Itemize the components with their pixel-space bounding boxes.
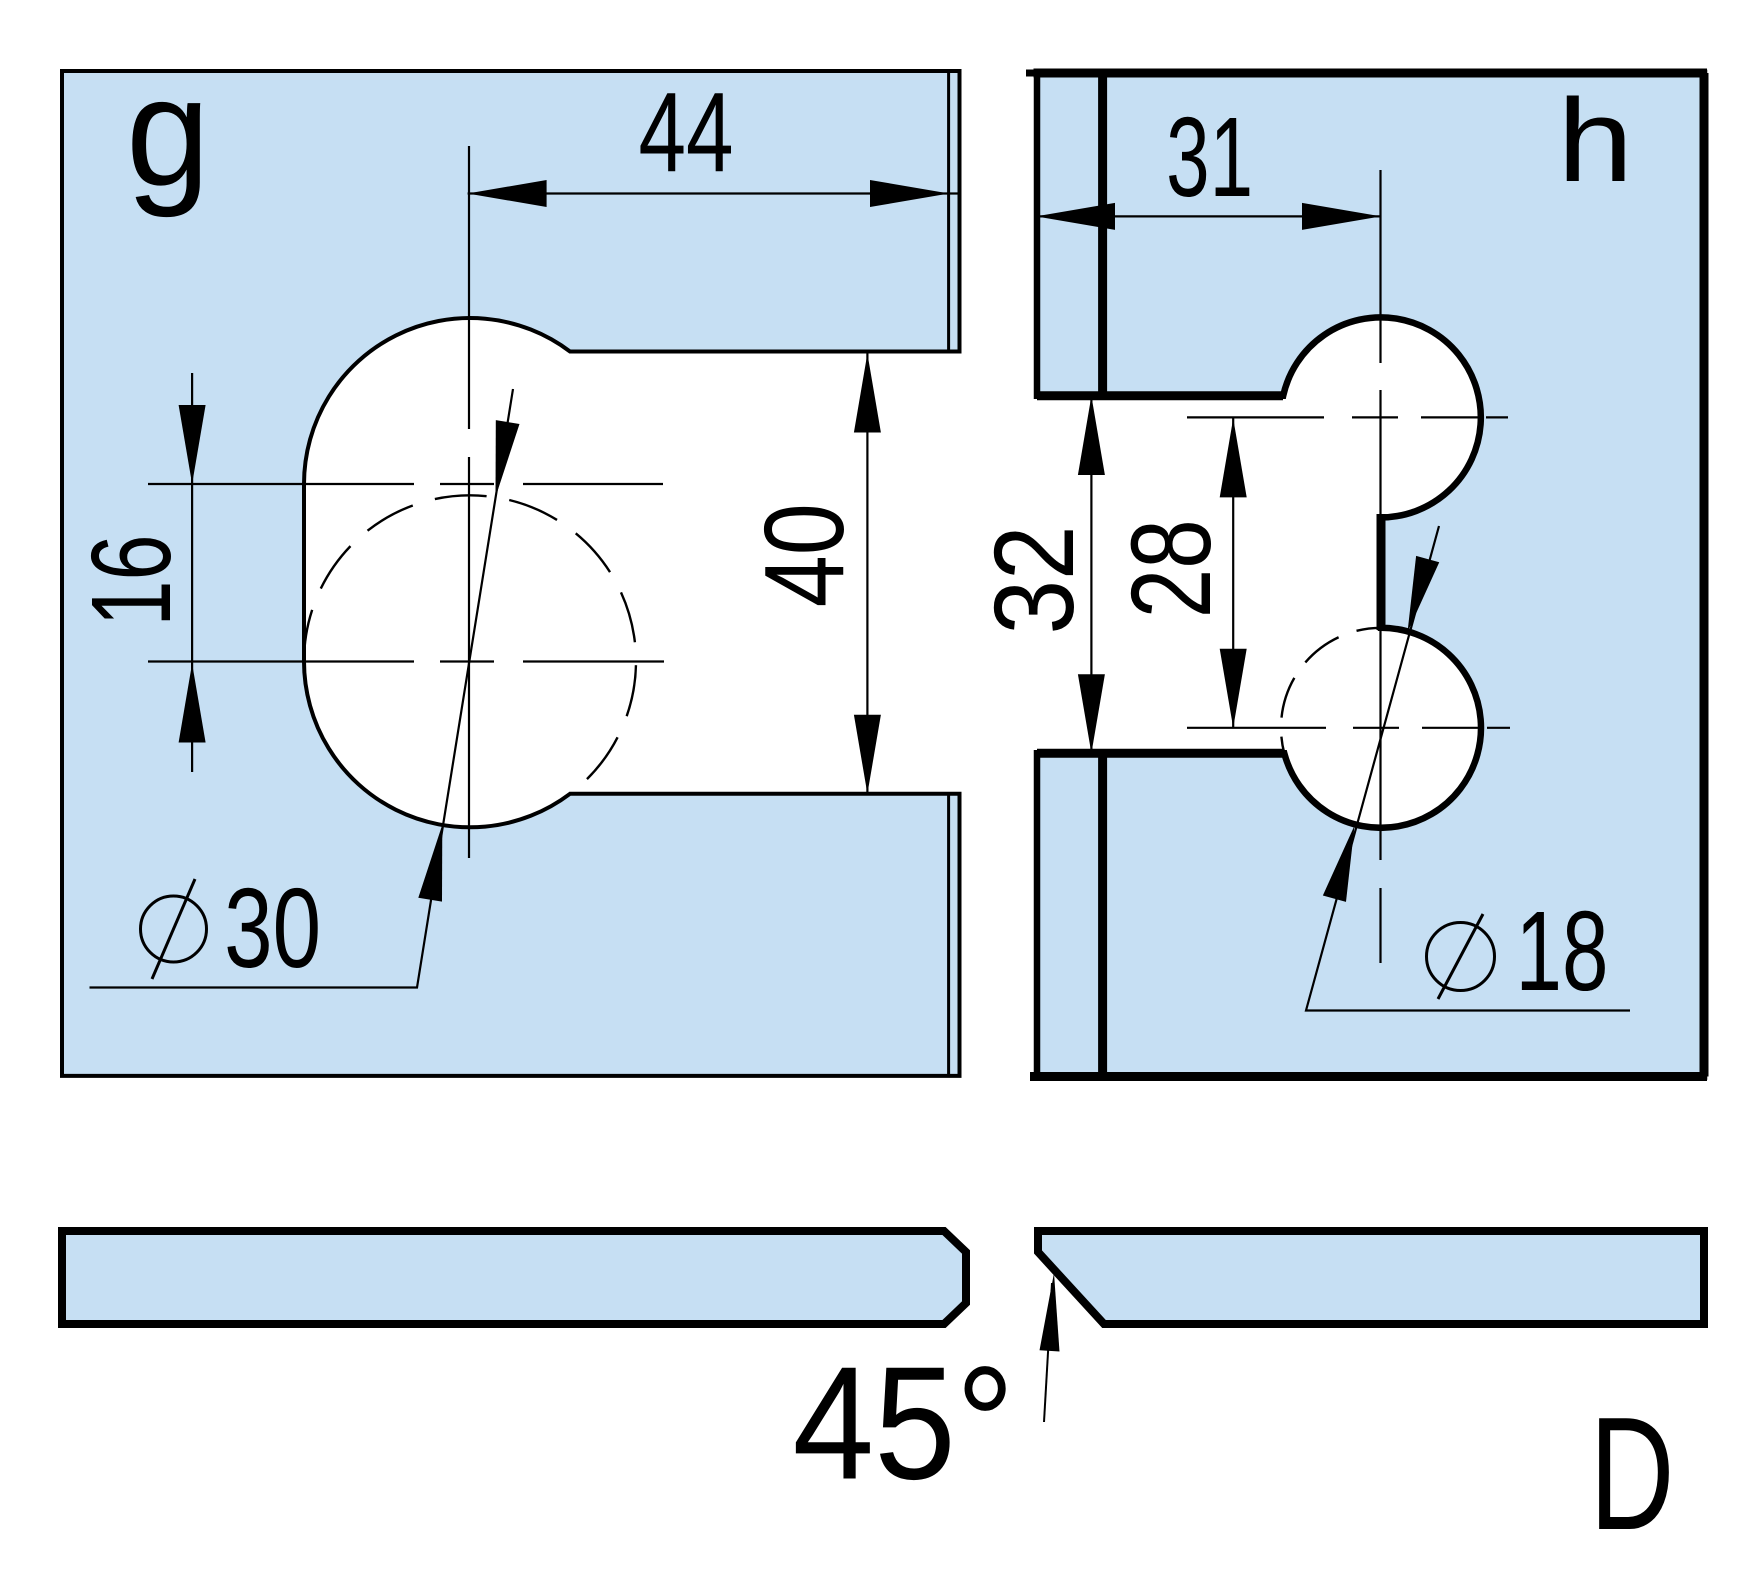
svg-text:18: 18 — [1516, 888, 1609, 1014]
svg-text:31: 31 — [1166, 94, 1253, 220]
svg-text:32: 32 — [971, 526, 1097, 635]
svg-text:30: 30 — [224, 865, 321, 991]
svg-text:44: 44 — [639, 69, 734, 195]
svg-text:16: 16 — [68, 535, 194, 627]
svg-text:D: D — [1590, 1384, 1675, 1564]
svg-text:h: h — [1557, 75, 1633, 207]
svg-text:40: 40 — [741, 503, 867, 607]
svg-text:45°: 45° — [793, 1334, 1015, 1514]
svg-text:28: 28 — [1108, 519, 1234, 618]
svg-text:g: g — [126, 45, 210, 218]
